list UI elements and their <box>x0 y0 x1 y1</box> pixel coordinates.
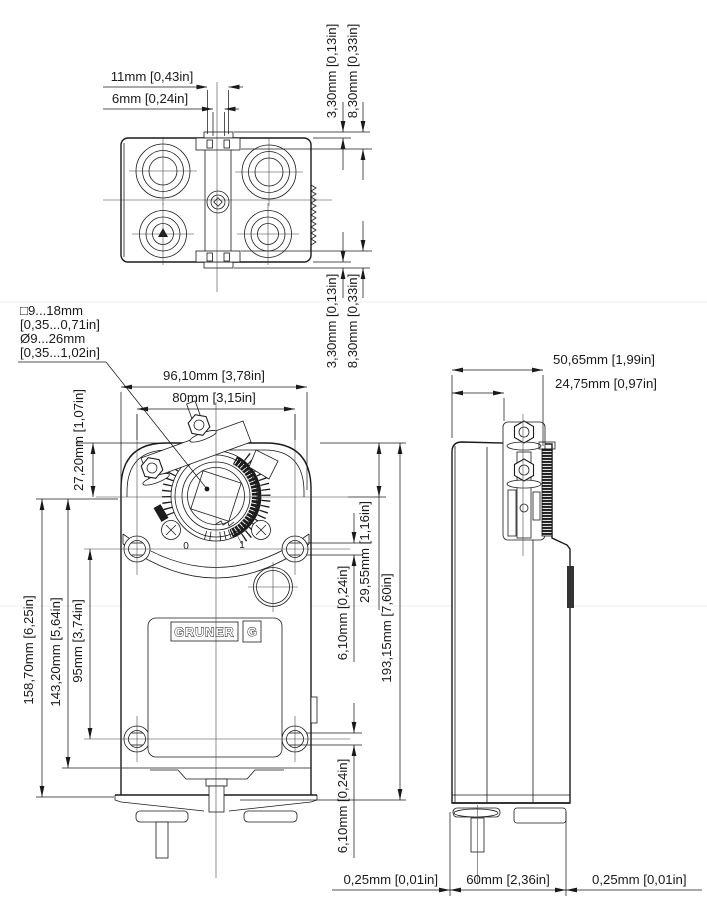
dim-offset-small-top: 3,30mm [0,13in] <box>324 24 339 119</box>
side-view <box>452 414 574 884</box>
top-view <box>103 82 332 292</box>
front-view: GRUNER G 0 <box>84 398 350 878</box>
dim-offset-large-top: 8,30mm [0,33in] <box>345 24 360 119</box>
threaded-rod <box>542 449 552 536</box>
dim-bracket-depth: 24,75mm [0,97in] <box>555 376 657 391</box>
side-foot-right <box>514 808 566 823</box>
serration-edge <box>311 185 316 245</box>
brand-logo: GRUNER <box>174 626 234 640</box>
dim-overall-depth: 50,65mm [1,99in] <box>553 352 655 367</box>
dim-clearance-right: 0,25mm [0,01in] <box>592 872 687 887</box>
dim-overall-width: 96,10mm [3,78in] <box>163 368 265 383</box>
dim-offset-large-bottom: 8,30mm [0,33in] <box>345 274 360 369</box>
dim-slot-width: 6mm [0,24in] <box>112 91 188 106</box>
brand-emblem: G <box>247 625 256 639</box>
clamp-screw-right <box>252 521 271 540</box>
scale-one: 1 <box>239 540 245 551</box>
rating-plate: GRUNER G <box>148 618 282 757</box>
dim-hole-flat-upper: 6,10mm [0,24in] <box>335 566 350 661</box>
dim-shaft-to-housing-bottom: 143,20mm [5,64in] <box>48 597 63 706</box>
dim-shaft-to-bottom-total: 158,70mm [6,25in] <box>21 595 36 704</box>
dim-offset-small-bottom: 3,30mm [0,13in] <box>324 274 339 369</box>
dim-tab-width: 11mm [0,43in] <box>111 69 194 84</box>
dim-top-to-shaft-right: 29,55mm [1,16in] <box>357 501 372 603</box>
foot-right <box>244 811 297 822</box>
mounting-bracket <box>503 418 545 540</box>
dim-hole-spacing-height: 95mm [3,74in] <box>70 599 85 683</box>
drawing-page: 11mm [0,43in] 6mm [0,24in] 3,30mm [0,13i… <box>0 0 707 908</box>
dim-clearance-left: 0,25mm [0,01in] <box>343 872 438 887</box>
clamp-screw-left <box>162 521 181 540</box>
dim-hole-spacing-width: 80mm [3,15in] <box>172 390 256 405</box>
note-line-4: [0,35...1,02in] <box>20 345 100 360</box>
cable-front <box>156 822 168 858</box>
note-line-3: Ø9...26mm <box>20 331 85 346</box>
dim-top-to-shaft: 27,20mm [1,07in] <box>71 389 86 491</box>
dim-overall-height: 193,15mm [7,60in] <box>379 573 394 682</box>
anti-rotation-tab <box>206 779 227 786</box>
side-connector-tab <box>311 697 317 723</box>
dim-hole-flat-lower: 6,10mm [0,24in] <box>335 759 350 854</box>
technical-drawing-canvas: 11mm [0,43in] 6mm [0,24in] 3,30mm [0,13i… <box>0 0 707 908</box>
note-line-1: □9...18mm <box>20 303 83 318</box>
center-screw <box>207 191 229 213</box>
dim-body-depth: 60mm [2,36in] <box>466 872 550 887</box>
connector-side <box>567 566 574 608</box>
foot-left <box>136 811 188 822</box>
scale-zero: 0 <box>183 541 189 552</box>
note-line-2: [0,35...0,71in] <box>20 317 100 332</box>
